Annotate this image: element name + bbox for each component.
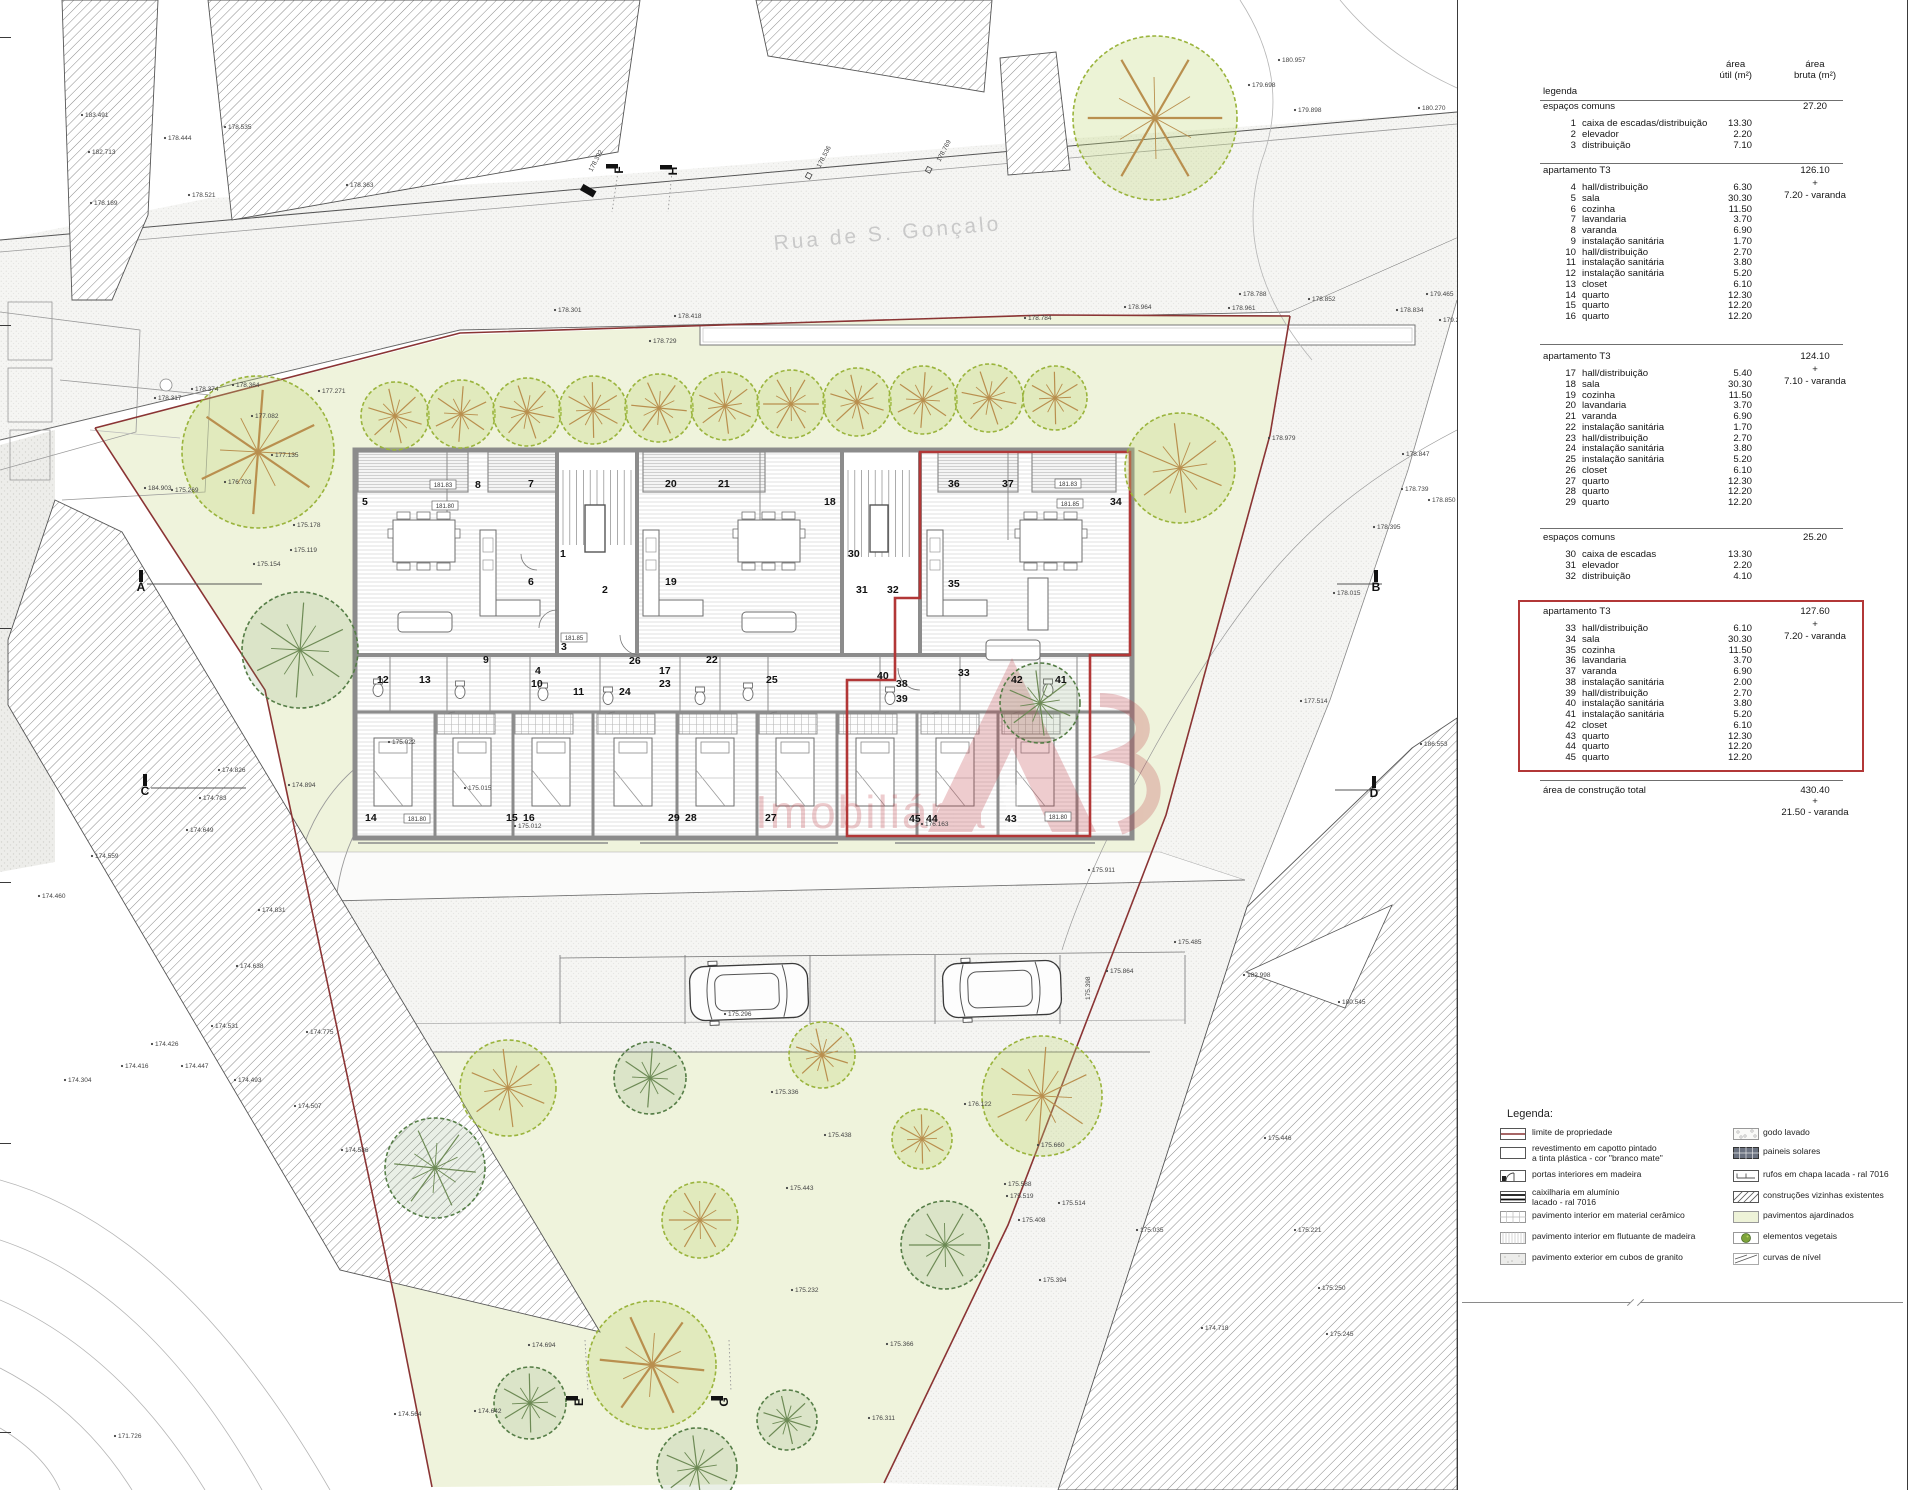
drawing-sheet: Imobiliária Rua de S. Gonçalo183.491182.…	[0, 0, 1920, 1490]
elevation-label: 182.998	[1243, 972, 1271, 979]
elevation-label: 175.119	[290, 547, 317, 554]
svg-text:184.903: 184.903	[148, 485, 172, 492]
row-util-value: 7.10	[1690, 141, 1752, 152]
elevation-label: 176.122	[964, 1101, 992, 1108]
tree	[385, 1118, 485, 1218]
svg-text:175.012: 175.012	[518, 823, 542, 830]
elevation-label: 175.864	[1106, 968, 1134, 975]
elevation-label: 178.847	[1402, 451, 1430, 458]
elevation-label: 178.015	[1333, 590, 1361, 597]
svg-text:180.270: 180.270	[1422, 105, 1446, 112]
svg-text:174.775: 174.775	[310, 1029, 334, 1036]
room-number: 23	[659, 678, 671, 690]
elevation-label: 175.296	[724, 1011, 752, 1018]
svg-text:175.588: 175.588	[1008, 1181, 1032, 1188]
legend-swatch-ceramico	[1500, 1210, 1526, 1228]
room-number: 13	[419, 674, 431, 686]
tree	[757, 1390, 817, 1450]
room-number: 19	[665, 576, 677, 588]
elevation-label: 174.559	[91, 853, 119, 860]
svg-text:175.366: 175.366	[890, 1341, 914, 1348]
svg-text:178.521: 178.521	[192, 192, 216, 199]
table-rule	[1540, 344, 1843, 345]
svg-text:174.493: 174.493	[238, 1077, 262, 1084]
svg-text:178.363: 178.363	[350, 182, 374, 189]
section-bruta-value: 25.20	[1778, 533, 1852, 544]
svg-text:176.703: 176.703	[228, 479, 252, 486]
svg-text:174.304: 174.304	[68, 1077, 92, 1084]
svg-text:178.834: 178.834	[1400, 307, 1424, 314]
elevation-label: 178.852	[1308, 296, 1336, 303]
legend-label: pavimento interior em flutuante de madei…	[1532, 1232, 1695, 1242]
elevation-label: 182.713	[88, 149, 116, 156]
elevation-label: 178.739	[1401, 486, 1429, 493]
svg-text:175.015: 175.015	[468, 785, 492, 792]
row-label: distribuição	[1582, 141, 1631, 152]
room-number: 34	[1110, 496, 1122, 508]
svg-text:179.698: 179.698	[1252, 82, 1276, 89]
svg-text:182.713: 182.713	[92, 149, 116, 156]
elevation-label: 174.416	[121, 1063, 149, 1070]
room-number: 35	[948, 578, 960, 590]
room-number: 33	[958, 667, 970, 679]
row-util-value: 1.70	[1690, 237, 1752, 248]
floor-level-tag: 181.83	[1055, 479, 1081, 488]
svg-text:175.911: 175.911	[1092, 867, 1115, 874]
margin-tick	[0, 1143, 11, 1144]
svg-text:180.545: 180.545	[1342, 999, 1366, 1006]
svg-text:B: B	[1372, 580, 1381, 594]
elevation-label: 177.514	[1300, 698, 1328, 705]
svg-text:174.718: 174.718	[1205, 1325, 1229, 1332]
room-number: 3	[561, 641, 567, 653]
col-header-bruta: bruta (m²)	[1778, 71, 1852, 82]
section-heading: espaços comuns	[1543, 533, 1615, 544]
legend-label: caixilharia em alumíniolacado - ral 7016	[1532, 1188, 1619, 1207]
section-heading: espaços comuns	[1543, 102, 1615, 113]
room-number: 12	[377, 674, 389, 686]
row-label: sala	[1582, 380, 1600, 391]
tree	[427, 380, 495, 448]
svg-text:G: G	[717, 1397, 731, 1406]
room-number: 37	[1002, 478, 1014, 490]
svg-text:178.788: 178.788	[1243, 291, 1267, 298]
svg-text:177.271: 177.271	[322, 388, 346, 395]
section-bruta-value: 126.10	[1778, 166, 1852, 177]
svg-text:F: F	[612, 166, 626, 173]
tree	[901, 1201, 989, 1289]
room-number: 28	[685, 812, 697, 824]
elevation-label: 176.703	[224, 479, 252, 486]
svg-text:176.122: 176.122	[968, 1101, 992, 1108]
svg-text:175.119: 175.119	[294, 547, 317, 554]
room-number: 16	[523, 812, 535, 824]
elevation-label: 179.465	[1426, 291, 1454, 298]
svg-text:A: A	[137, 580, 146, 594]
margin-tick	[0, 882, 11, 883]
floor-level-tag: 181.80	[404, 814, 430, 823]
svg-text:178.418: 178.418	[678, 313, 702, 320]
room-number: 4	[535, 665, 541, 677]
room-number: 22	[706, 654, 718, 666]
tree	[691, 372, 759, 440]
elevation-label: 174.638	[236, 963, 264, 970]
legend-swatch-ajardinados	[1733, 1210, 1759, 1228]
elevation-label: 174.894	[288, 782, 316, 789]
row-label: elevador	[1582, 561, 1619, 572]
tree	[494, 1367, 566, 1439]
section-marker-d: D	[1335, 776, 1380, 800]
elevation-label: 175.519	[1006, 1193, 1034, 1200]
legend-label: pavimento interior em material cerâmico	[1532, 1211, 1685, 1221]
tree	[242, 592, 358, 708]
fold-tick	[1627, 1299, 1634, 1306]
floor-level-tag: 181.80	[1045, 812, 1071, 821]
elevation-label: 183.491	[81, 112, 109, 119]
svg-text:178.444: 178.444	[168, 135, 192, 142]
section-bruta-extra: 7.20 - varanda	[1778, 191, 1852, 202]
elevation-label: 178.444	[164, 135, 192, 142]
svg-text:C: C	[141, 784, 150, 798]
svg-text:178.847: 178.847	[1406, 451, 1430, 458]
tree	[1125, 413, 1235, 523]
elevation-label: 175.443	[786, 1185, 814, 1192]
legend-label: pavimento exterior em cubos de granito	[1532, 1253, 1683, 1263]
tree	[982, 1036, 1102, 1156]
row-number: 16	[1540, 312, 1576, 323]
legend-label: paineis solares	[1763, 1147, 1820, 1157]
room-number: 18	[824, 496, 836, 508]
svg-text:174.894: 174.894	[292, 782, 316, 789]
svg-text:175.022: 175.022	[392, 739, 416, 746]
elevation-label: 175.514	[1058, 1200, 1086, 1207]
elevation-label: 178.961	[1228, 305, 1256, 312]
svg-text:183.491: 183.491	[85, 112, 109, 119]
svg-text:179.898: 179.898	[1298, 107, 1322, 114]
elevation-label: 175.245	[1326, 1331, 1354, 1338]
svg-text:179.465: 179.465	[1430, 291, 1454, 298]
elevation-label: 174.831	[258, 907, 286, 914]
svg-text:178.189: 178.189	[94, 200, 118, 207]
svg-text:174.638: 174.638	[240, 963, 264, 970]
tree	[889, 366, 957, 434]
svg-text:174.831: 174.831	[262, 907, 286, 914]
svg-text:175.250: 175.250	[1322, 1285, 1346, 1292]
room-number: 41	[1055, 674, 1067, 686]
legend-label: godo lavado	[1763, 1128, 1810, 1138]
row-util-value: 30.30	[1690, 194, 1752, 205]
svg-text:178.015: 178.015	[1337, 590, 1361, 597]
svg-text:174.642: 174.642	[478, 1408, 502, 1415]
margin-tick	[0, 628, 11, 629]
row-label: instalação sanitária	[1582, 237, 1664, 248]
elevation-label: 178.729	[649, 338, 677, 345]
elevation-label: 174.531	[211, 1023, 239, 1030]
elevation-label: 178.301	[554, 307, 582, 314]
elevation-label: 180.545	[1338, 999, 1366, 1006]
elevation-label: 186.553	[1420, 741, 1448, 748]
row-label: quarto	[1582, 312, 1609, 323]
room-number: 45	[909, 813, 921, 825]
svg-text:179.231: 179.231	[1443, 317, 1457, 324]
room-number: 7	[528, 478, 534, 490]
svg-text:175.660: 175.660	[1041, 1142, 1065, 1149]
elevation-label: 175.250	[1318, 1285, 1346, 1292]
elevation-label: 178.317	[154, 395, 182, 402]
svg-text:175.438: 175.438	[828, 1132, 852, 1139]
tree	[892, 1109, 952, 1169]
tree	[588, 1301, 716, 1429]
svg-text:175.443: 175.443	[790, 1185, 814, 1192]
elevation-label: 175.398	[1085, 976, 1092, 1000]
svg-text:181.85: 181.85	[565, 636, 584, 642]
elevation-label: 178.363	[346, 182, 374, 189]
svg-text:178.979: 178.979	[1272, 435, 1296, 442]
sheet-divider-line	[1457, 0, 1458, 1490]
row-util-value: 6.10	[1690, 466, 1752, 477]
legend-swatch-flutuante	[1500, 1231, 1526, 1249]
elevation-label: 178.418	[674, 313, 702, 320]
tree	[789, 1022, 855, 1088]
elevation-label: 174.642	[474, 1408, 502, 1415]
row-label: instalação sanitária	[1582, 423, 1664, 434]
margin-tick	[0, 37, 11, 38]
room-number: 40	[877, 670, 889, 682]
room-number: 2	[602, 584, 608, 596]
legend-label: portas interiores em madeira	[1532, 1170, 1641, 1180]
room-number: 15	[506, 812, 518, 824]
elevation-label: 175.911	[1088, 867, 1115, 874]
svg-text:178.852: 178.852	[1312, 296, 1336, 303]
elevation-label: 184.903	[144, 485, 172, 492]
row-label: elevador	[1582, 130, 1619, 141]
elevation-label: 175.178	[293, 522, 321, 529]
floor-level-tag: 181.83	[430, 480, 456, 489]
svg-text:175.398: 175.398	[1085, 976, 1092, 1000]
row-util-value: 4.10	[1690, 572, 1752, 583]
room-number: 30	[848, 548, 860, 560]
room-number: 14	[365, 812, 377, 824]
svg-text:178.364: 178.364	[236, 382, 260, 389]
svg-text:174.783: 174.783	[203, 795, 227, 802]
floor-level-tag: 181.85	[1057, 499, 1083, 508]
room-number: 5	[362, 496, 368, 508]
total-extra: 21.50 - varanda	[1778, 808, 1852, 819]
room-number: 9	[483, 654, 489, 666]
elevation-label: 175.035	[1136, 1227, 1164, 1234]
legend-title: Legenda:	[1507, 1108, 1553, 1120]
elevation-label: 178.521	[188, 192, 216, 199]
tree	[614, 1042, 686, 1114]
section-heading: apartamento T3	[1543, 166, 1611, 177]
room-number: 29	[668, 812, 680, 824]
elevation-label: 175.022	[388, 739, 416, 746]
elevation-label: 175.366	[886, 1341, 914, 1348]
svg-text:181.83: 181.83	[1059, 482, 1078, 488]
room-number: 25	[766, 674, 778, 686]
svg-text:181.85: 181.85	[1061, 502, 1080, 508]
svg-text:175.035: 175.035	[1140, 1227, 1164, 1234]
table-rule	[1540, 528, 1843, 529]
row-util-value: 1.70	[1690, 423, 1752, 434]
svg-text:181.80: 181.80	[408, 817, 427, 823]
legend-label: construções vizinhas existentes	[1763, 1191, 1884, 1201]
fold-line	[1462, 1302, 1630, 1303]
sheet-right-border	[1907, 0, 1908, 1490]
elevation-label: 175.232	[791, 1287, 819, 1294]
legend-label: pavimentos ajardinados	[1763, 1211, 1854, 1221]
svg-text:181.80: 181.80	[1049, 815, 1068, 821]
legend-label: revestimento em capotto pintadoa tinta p…	[1532, 1144, 1663, 1163]
svg-text:174.586: 174.586	[345, 1147, 369, 1154]
legend-swatch-vegetais	[1733, 1231, 1759, 1249]
svg-text:178.739: 178.739	[1405, 486, 1429, 493]
svg-text:174.694: 174.694	[532, 1342, 556, 1349]
svg-text:175.336: 175.336	[775, 1089, 799, 1096]
elevation-label: 176.311	[868, 1415, 895, 1422]
room-number: 24	[619, 686, 631, 698]
elevation-label: 174.493	[234, 1077, 262, 1084]
svg-text:178.374: 178.374	[195, 386, 219, 393]
svg-text:181.80: 181.80	[436, 504, 455, 510]
elevation-label: 178.964	[1124, 304, 1152, 311]
floor-level-tag: 181.80	[432, 501, 458, 510]
svg-text:175.296: 175.296	[728, 1011, 752, 1018]
room-number: 39	[896, 693, 908, 705]
svg-text:E: E	[572, 1398, 586, 1406]
legend-swatch-construcoes	[1733, 1190, 1759, 1208]
elevation-label: 175.588	[1004, 1181, 1032, 1188]
legend-swatch-caixilharia	[1500, 1190, 1526, 1208]
highlighted-apartment-box	[1518, 600, 1864, 772]
svg-text:175.394: 175.394	[1043, 1277, 1067, 1284]
elevation-label: 174.718	[1201, 1325, 1229, 1332]
tree	[823, 368, 891, 436]
elevation-label: 179.698	[1248, 82, 1276, 89]
elevation-label: 174.694	[528, 1342, 556, 1349]
table-rule	[1540, 163, 1843, 164]
col-header-util: útil (m²)	[1700, 71, 1752, 82]
elevation-label: 180.957	[1278, 57, 1306, 64]
room-number: 10	[531, 678, 543, 690]
legend-swatch-solares	[1733, 1146, 1759, 1164]
svg-text:175.514: 175.514	[1062, 1200, 1086, 1207]
margin-tick	[0, 1432, 11, 1433]
section-bruta-plus: +	[1778, 179, 1852, 190]
elevation-label: 174.564	[394, 1411, 422, 1418]
elevation-label: 178.788	[1239, 291, 1267, 298]
elevation-label: 178.834	[1396, 307, 1424, 314]
elevation-label: 174.775	[306, 1029, 334, 1036]
svg-text:175.408: 175.408	[1022, 1217, 1046, 1224]
elevation-label: 177.271	[318, 388, 346, 395]
elevation-label: 175.012	[514, 823, 542, 830]
legend-label: limite de propriedade	[1532, 1128, 1612, 1138]
elevation-label: 178.374	[191, 386, 219, 393]
watermark-text: Imobiliária	[755, 786, 987, 838]
room-number: 17	[659, 665, 671, 677]
row-label: closet	[1582, 280, 1607, 291]
svg-text:177.514: 177.514	[1304, 698, 1328, 705]
svg-text:178.784: 178.784	[1028, 315, 1052, 322]
legend-swatch-godo	[1733, 1127, 1759, 1145]
margin-tick	[0, 325, 11, 326]
elevation-label: 175.394	[1039, 1277, 1067, 1284]
tree	[559, 376, 627, 444]
elevation-label: 174.304	[64, 1077, 92, 1084]
room-number: 1	[560, 548, 566, 560]
section-bruta-value: 124.10	[1778, 352, 1852, 363]
row-label: distribuição	[1582, 572, 1631, 583]
svg-text:180.957: 180.957	[1282, 57, 1306, 64]
legend-label: curvas de nível	[1763, 1253, 1821, 1263]
total-label: área de construção total	[1543, 786, 1646, 797]
elevation-label: 175.485	[1174, 939, 1202, 946]
section-bruta-value: 27.20	[1778, 102, 1852, 113]
row-number: 13	[1540, 280, 1576, 291]
svg-text:174.460: 174.460	[42, 893, 66, 900]
svg-text:174.426: 174.426	[155, 1041, 179, 1048]
elevation-label: 178.979	[1268, 435, 1296, 442]
svg-text:H: H	[666, 167, 680, 176]
svg-text:175.446: 175.446	[1268, 1135, 1292, 1142]
tree	[1023, 366, 1087, 430]
legend-label: rufos em chapa lacada - ral 7016	[1763, 1170, 1889, 1180]
svg-text:182.998: 182.998	[1247, 972, 1271, 979]
row-number: 5	[1540, 194, 1576, 205]
room-number: 42	[1011, 674, 1023, 686]
svg-text:174.649: 174.649	[190, 827, 214, 834]
row-number: 26	[1540, 466, 1576, 477]
svg-text:175.245: 175.245	[1330, 1331, 1354, 1338]
legend-swatch-capotto	[1500, 1146, 1526, 1164]
room-number: 27	[765, 812, 777, 824]
svg-text:174.559: 174.559	[95, 853, 119, 860]
room-number: 32	[887, 584, 899, 596]
svg-text:177.135: 177.135	[275, 452, 299, 459]
room-number: 38	[896, 678, 908, 690]
room-number: 43	[1005, 813, 1017, 825]
room-number: 21	[718, 478, 730, 490]
elevation-label: 178.189	[90, 200, 118, 207]
svg-text:175.269: 175.269	[175, 487, 199, 494]
svg-text:186.553: 186.553	[1424, 741, 1448, 748]
tree	[757, 370, 825, 438]
section-bruta-plus: +	[1778, 365, 1852, 376]
svg-text:174.564: 174.564	[398, 1411, 422, 1418]
elevation-label: 175.660	[1037, 1142, 1065, 1149]
svg-text:175.864: 175.864	[1110, 968, 1134, 975]
row-util-value: 2.20	[1690, 561, 1752, 572]
row-number: 2	[1540, 130, 1576, 141]
site-plan: Imobiliária Rua de S. Gonçalo183.491182.…	[0, 0, 1457, 1490]
tree	[662, 1182, 738, 1258]
row-label: quarto	[1582, 498, 1609, 509]
elevation-label: 174.460	[38, 893, 66, 900]
parked-car	[942, 955, 1062, 1023]
svg-text:174.826: 174.826	[222, 767, 246, 774]
elevation-label: 175.408	[1018, 1217, 1046, 1224]
legend-swatch-rufos	[1733, 1169, 1759, 1187]
svg-text:178.850: 178.850	[1432, 497, 1456, 504]
tree	[361, 382, 429, 450]
elevation-label: 177.135	[271, 452, 299, 459]
elevation-label: 177.082	[251, 413, 279, 420]
table-title: legenda	[1543, 87, 1577, 98]
row-number: 22	[1540, 423, 1576, 434]
tree	[182, 376, 334, 528]
tree	[955, 364, 1023, 432]
